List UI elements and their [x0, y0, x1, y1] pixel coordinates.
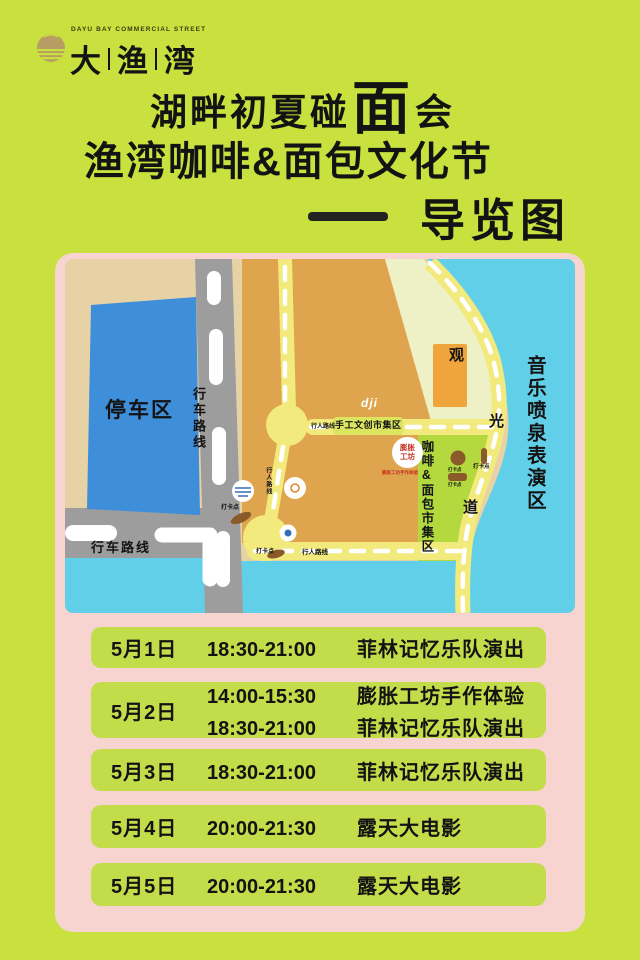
checkin-label: 打卡点 — [473, 464, 490, 470]
checkin-label: 打卡点 — [448, 467, 462, 472]
brand-char: 湾 — [164, 36, 195, 81]
checkin-label: 打卡点 — [256, 549, 274, 556]
workshop-logo-badge: 膨胀 工坊 — [392, 437, 423, 468]
schedule-time: 20:00-21:30 — [207, 876, 357, 899]
schedule-row: 5月2日 14:00-15:30 膨胀工坊手作体验 18:30-21:00 菲林… — [91, 682, 546, 738]
road-dash — [216, 531, 230, 587]
title-line3: 导览图 — [308, 184, 570, 249]
schedule-date: 5月5日 — [91, 870, 207, 899]
guide-map-label: 导览图 — [420, 184, 570, 249]
schedule-date: 5月3日 — [91, 756, 207, 785]
music-fountain-zone-label: 音乐喷泉表演区 — [523, 355, 545, 513]
schedule-row: 5月5日 20:00-21:30 露天大电影 — [91, 863, 546, 906]
info-point-icon — [285, 530, 292, 537]
schedule-date: 5月1日 — [91, 633, 207, 662]
water-bottom-left — [65, 558, 205, 613]
brand-name: 大 渔 湾 — [70, 36, 195, 81]
schedule-event: 菲林记忆乐队演出 — [357, 756, 525, 785]
brand-char: 渔 — [117, 36, 148, 81]
road-dash — [207, 271, 221, 305]
divider — [155, 48, 157, 70]
road-dash — [209, 329, 223, 385]
drive-route-label-vertical: 行车路线 — [190, 387, 205, 451]
venue-map: 停车区 行车路线 行车路线 音乐喷泉表演区 观 光 道 手工文创市集区 咖啡&面… — [65, 259, 575, 613]
workshop-label-bottom: 工坊 — [400, 453, 415, 461]
title-line2: 渔湾咖啡&面包文化节 — [84, 129, 493, 187]
title-line1-pre: 湖畔初夏碰 — [150, 82, 350, 136]
schedule-date: 5月4日 — [91, 812, 207, 841]
schedule-time: 20:00-21:30 — [207, 818, 357, 841]
walk-route-label: 行人路线 — [302, 549, 328, 556]
walk-route-label: 行人路线 — [264, 467, 271, 495]
schedule-row: 5月1日 18:30-21:00 菲林记忆乐队演出 — [91, 627, 546, 668]
schedule-event: 菲林记忆乐队演出 — [357, 633, 525, 662]
road-dash — [212, 427, 226, 485]
schedule-event: 菲林记忆乐队演出 — [357, 712, 525, 741]
checkin-label: 打卡点 — [221, 505, 239, 512]
water-bottom — [240, 561, 472, 613]
path-node — [266, 404, 308, 446]
schedule-row: 5月3日 18:30-21:00 菲林记忆乐队演出 — [91, 749, 546, 791]
sightseeing-char-1: 观 — [449, 347, 464, 364]
map-canvas — [65, 259, 575, 613]
divider — [108, 48, 110, 70]
dash-bar — [308, 212, 388, 221]
road-dash — [65, 525, 117, 541]
vendor-logo-round — [284, 477, 306, 499]
dji-logo: dji — [361, 397, 378, 411]
schedule-time: 18:30-21:00 — [207, 718, 357, 741]
title-line1-post: 会 — [415, 82, 455, 136]
schedule-time: 14:00-15:30 — [207, 686, 357, 709]
schedule-event: 膨胀工坊手作体验 — [357, 680, 525, 709]
schedule-time: 18:30-21:00 — [207, 639, 357, 662]
brand-char: 大 — [70, 36, 101, 81]
parking-label: 停车区 — [105, 399, 174, 423]
schedule-event: 露天大电影 — [357, 812, 462, 841]
sun-wave-logo-icon — [36, 33, 66, 63]
craft-market-label: 手工文创市集区 — [335, 420, 401, 430]
sightseeing-char-2: 光 — [489, 413, 504, 430]
walk-route-label: 行人路线 — [311, 424, 335, 431]
checkin-label: 打卡点 — [448, 482, 462, 487]
sightseeing-char-3: 道 — [463, 499, 478, 516]
schedule-event: 露天大电影 — [357, 870, 462, 899]
workshop-note: 膨胀工坊手作体验 — [382, 470, 418, 475]
schedule-time: 18:30-21:00 — [207, 762, 357, 785]
vendor-logo-striped — [232, 480, 254, 502]
schedule-date: 5月2日 — [91, 696, 207, 725]
drive-route-label-horizontal: 行车路线 — [91, 541, 151, 556]
logo-tagline: DAYU BAY COMMERCIAL STREET — [71, 26, 206, 33]
map-card: 停车区 行车路线 行车路线 音乐喷泉表演区 观 光 道 手工文创市集区 咖啡&面… — [55, 253, 585, 932]
event-poster: DAYU BAY COMMERCIAL STREET 大 渔 湾 湖畔初夏碰 面… — [0, 0, 640, 960]
schedule-row: 5月4日 20:00-21:30 露天大电影 — [91, 805, 546, 848]
